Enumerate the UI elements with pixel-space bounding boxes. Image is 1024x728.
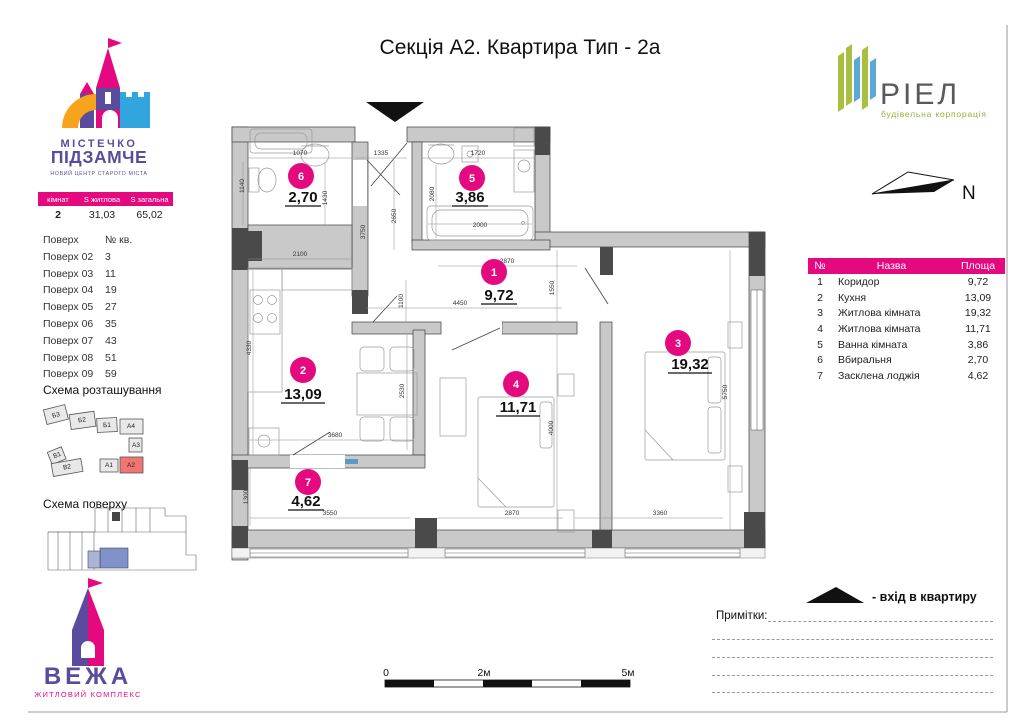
floors-row: Поверх 0419 (43, 282, 143, 299)
summary-header-rooms: кімнат (38, 195, 78, 204)
section-floorplan-heading: Схема поверху (43, 497, 127, 511)
summary-table-header: кімнат S житлова S загальна (38, 192, 173, 206)
floors-header-apt: № кв. (105, 232, 132, 249)
floors-row: Поверх 0635 (43, 316, 143, 333)
svg-text:1430: 1430 (322, 190, 329, 205)
developer-logo-icon (838, 44, 876, 112)
svg-text:2870: 2870 (505, 510, 520, 517)
svg-text:3: 3 (675, 338, 681, 350)
brand-top-tagline: НОВИЙ ЦЕНТР СТАРОГО МІСТА (50, 169, 147, 177)
floors-row: Поверх 0743 (43, 333, 143, 350)
rooms-table: № Назва Площа 1Коридор9,72 2Кухня13,09 3… (808, 258, 1005, 384)
floors-row: Поверх 0959 (43, 366, 143, 383)
brand-bottom-tagline: ЖИТЛОВИЙ КОМПЛЕКС (34, 690, 141, 699)
summary-rooms-value: 2 (38, 209, 78, 221)
floors-list: Поверх № кв. Поверх 023 Поверх 0311 Пове… (43, 232, 143, 383)
rooms-table-row: 1Коридор9,72 (808, 274, 1005, 290)
entrance-legend-icon (806, 587, 864, 603)
svg-text:3750: 3750 (360, 224, 367, 239)
svg-text:13,09: 13,09 (284, 386, 322, 403)
summary-total-value: 65,02 (126, 209, 173, 221)
site-scheme: Б3 Б2 Б1 А4 А3 А1 А2 В1 В2 (43, 405, 143, 477)
page-title: Секція А2. Квартира Тип - 2а (260, 36, 780, 60)
floors-row: Поверх 0311 (43, 266, 143, 283)
rooms-table-row: 2Кухня13,09 (808, 290, 1005, 306)
svg-text:1335: 1335 (374, 150, 389, 157)
svg-text:3,86: 3,86 (455, 189, 484, 206)
floors-list-header: Поверх № кв. (43, 232, 143, 249)
svg-text:А4: А4 (127, 423, 135, 430)
svg-text:2000: 2000 (473, 222, 488, 229)
svg-text:5м: 5м (621, 667, 634, 679)
brand-bottom-name: ВЕЖА (44, 663, 132, 690)
svg-text:А1: А1 (105, 462, 113, 469)
svg-text:2100: 2100 (293, 251, 308, 258)
svg-text:3680: 3680 (328, 432, 343, 439)
rooms-table-header: № Назва Площа (808, 258, 1005, 274)
notes-line (712, 657, 993, 658)
floor-scheme-highlight (100, 548, 128, 568)
notes-line (712, 692, 993, 693)
svg-text:4450: 4450 (453, 300, 468, 307)
site-scheme-highlight: А2 (120, 457, 143, 473)
svg-text:4: 4 (513, 379, 520, 391)
entrance-legend-label: - вхід в квартиру (872, 590, 977, 604)
svg-text:2650: 2650 (391, 208, 398, 223)
developer-tagline: будівельна корпорація (881, 109, 987, 119)
floors-row: Поверх 0851 (43, 350, 143, 367)
svg-text:2530: 2530 (399, 383, 406, 398)
summary-header-total: S загальна (126, 195, 173, 204)
svg-text:3550: 3550 (323, 510, 338, 517)
svg-text:2080: 2080 (429, 186, 436, 201)
developer-name: РІЕЛ (880, 78, 960, 111)
floor-scheme (48, 508, 196, 570)
svg-text:4000: 4000 (548, 420, 555, 435)
svg-text:2м: 2м (477, 667, 490, 679)
notes-label: Примітки: (716, 610, 767, 622)
svg-text:3360: 3360 (653, 510, 668, 517)
entrance-arrow-icon (366, 102, 424, 122)
notes-line (768, 621, 993, 622)
rooms-table-row: 7Засклена лоджія4,62 (808, 368, 1005, 384)
rooms-table-row: 5Ванна кімната3,86 (808, 337, 1005, 353)
rooms-table-row: 3Житлова кімната19,32 (808, 305, 1005, 321)
svg-text:1720: 1720 (471, 150, 486, 157)
summary-table: кімнат S житлова S загальна 2 31,03 65,0… (38, 192, 173, 224)
floors-row: Поверх 0527 (43, 299, 143, 316)
north-label: N (962, 183, 976, 204)
floors-header-floor: Поверх (43, 232, 105, 249)
floors-row: Поверх 023 (43, 249, 143, 266)
brand-top-logo-icon (62, 38, 150, 128)
brand-top-line2: ПІДЗАМЧЕ (51, 147, 147, 167)
svg-text:1140: 1140 (239, 179, 246, 193)
svg-text:2: 2 (300, 365, 306, 377)
svg-text:А3: А3 (132, 442, 140, 449)
svg-text:5: 5 (469, 173, 475, 185)
svg-text:1070: 1070 (293, 150, 308, 157)
svg-text:1550: 1550 (549, 280, 556, 295)
svg-text:1300: 1300 (243, 489, 250, 504)
north-arrow-icon (872, 172, 954, 194)
svg-text:19,32: 19,32 (671, 356, 709, 373)
svg-text:4,62: 4,62 (291, 493, 320, 510)
floorplan-brochure-page: { "title": "Секція А2. Квартира Тип - 2а… (0, 0, 1024, 728)
svg-text:5750: 5750 (722, 384, 729, 399)
svg-text:0: 0 (383, 667, 389, 679)
notes-line (712, 675, 993, 676)
svg-text:9,72: 9,72 (484, 287, 513, 304)
rooms-table-row: 4Житлова кімната11,71 (808, 321, 1005, 337)
svg-text:6: 6 (298, 171, 304, 183)
svg-text:1100: 1100 (398, 294, 405, 308)
summary-living-value: 31,03 (78, 209, 126, 221)
scale-bar: 0 2м 5м (383, 667, 634, 687)
summary-header-living: S житлова (78, 195, 126, 204)
svg-text:2,70: 2,70 (288, 189, 317, 206)
svg-text:1: 1 (491, 267, 497, 279)
plan-doors (290, 143, 608, 468)
svg-text:Б1: Б1 (103, 422, 112, 429)
rooms-table-row: 6Вбиральня2,70 (808, 352, 1005, 368)
svg-text:11,71: 11,71 (500, 399, 537, 416)
svg-text:Б2: Б2 (78, 416, 87, 424)
notes-line (712, 639, 993, 640)
brand-bottom-logo-icon (72, 578, 104, 666)
floor-plan: 1070 1335 1720 1140 1430 2080 2650 3750 … (232, 102, 765, 560)
svg-text:А2: А2 (127, 462, 135, 469)
section-location-heading: Схема розташування (43, 383, 162, 397)
summary-table-values: 2 31,03 65,02 (38, 206, 173, 224)
svg-text:7: 7 (305, 477, 311, 489)
svg-text:4330: 4330 (246, 340, 253, 355)
svg-text:В2: В2 (63, 463, 72, 471)
